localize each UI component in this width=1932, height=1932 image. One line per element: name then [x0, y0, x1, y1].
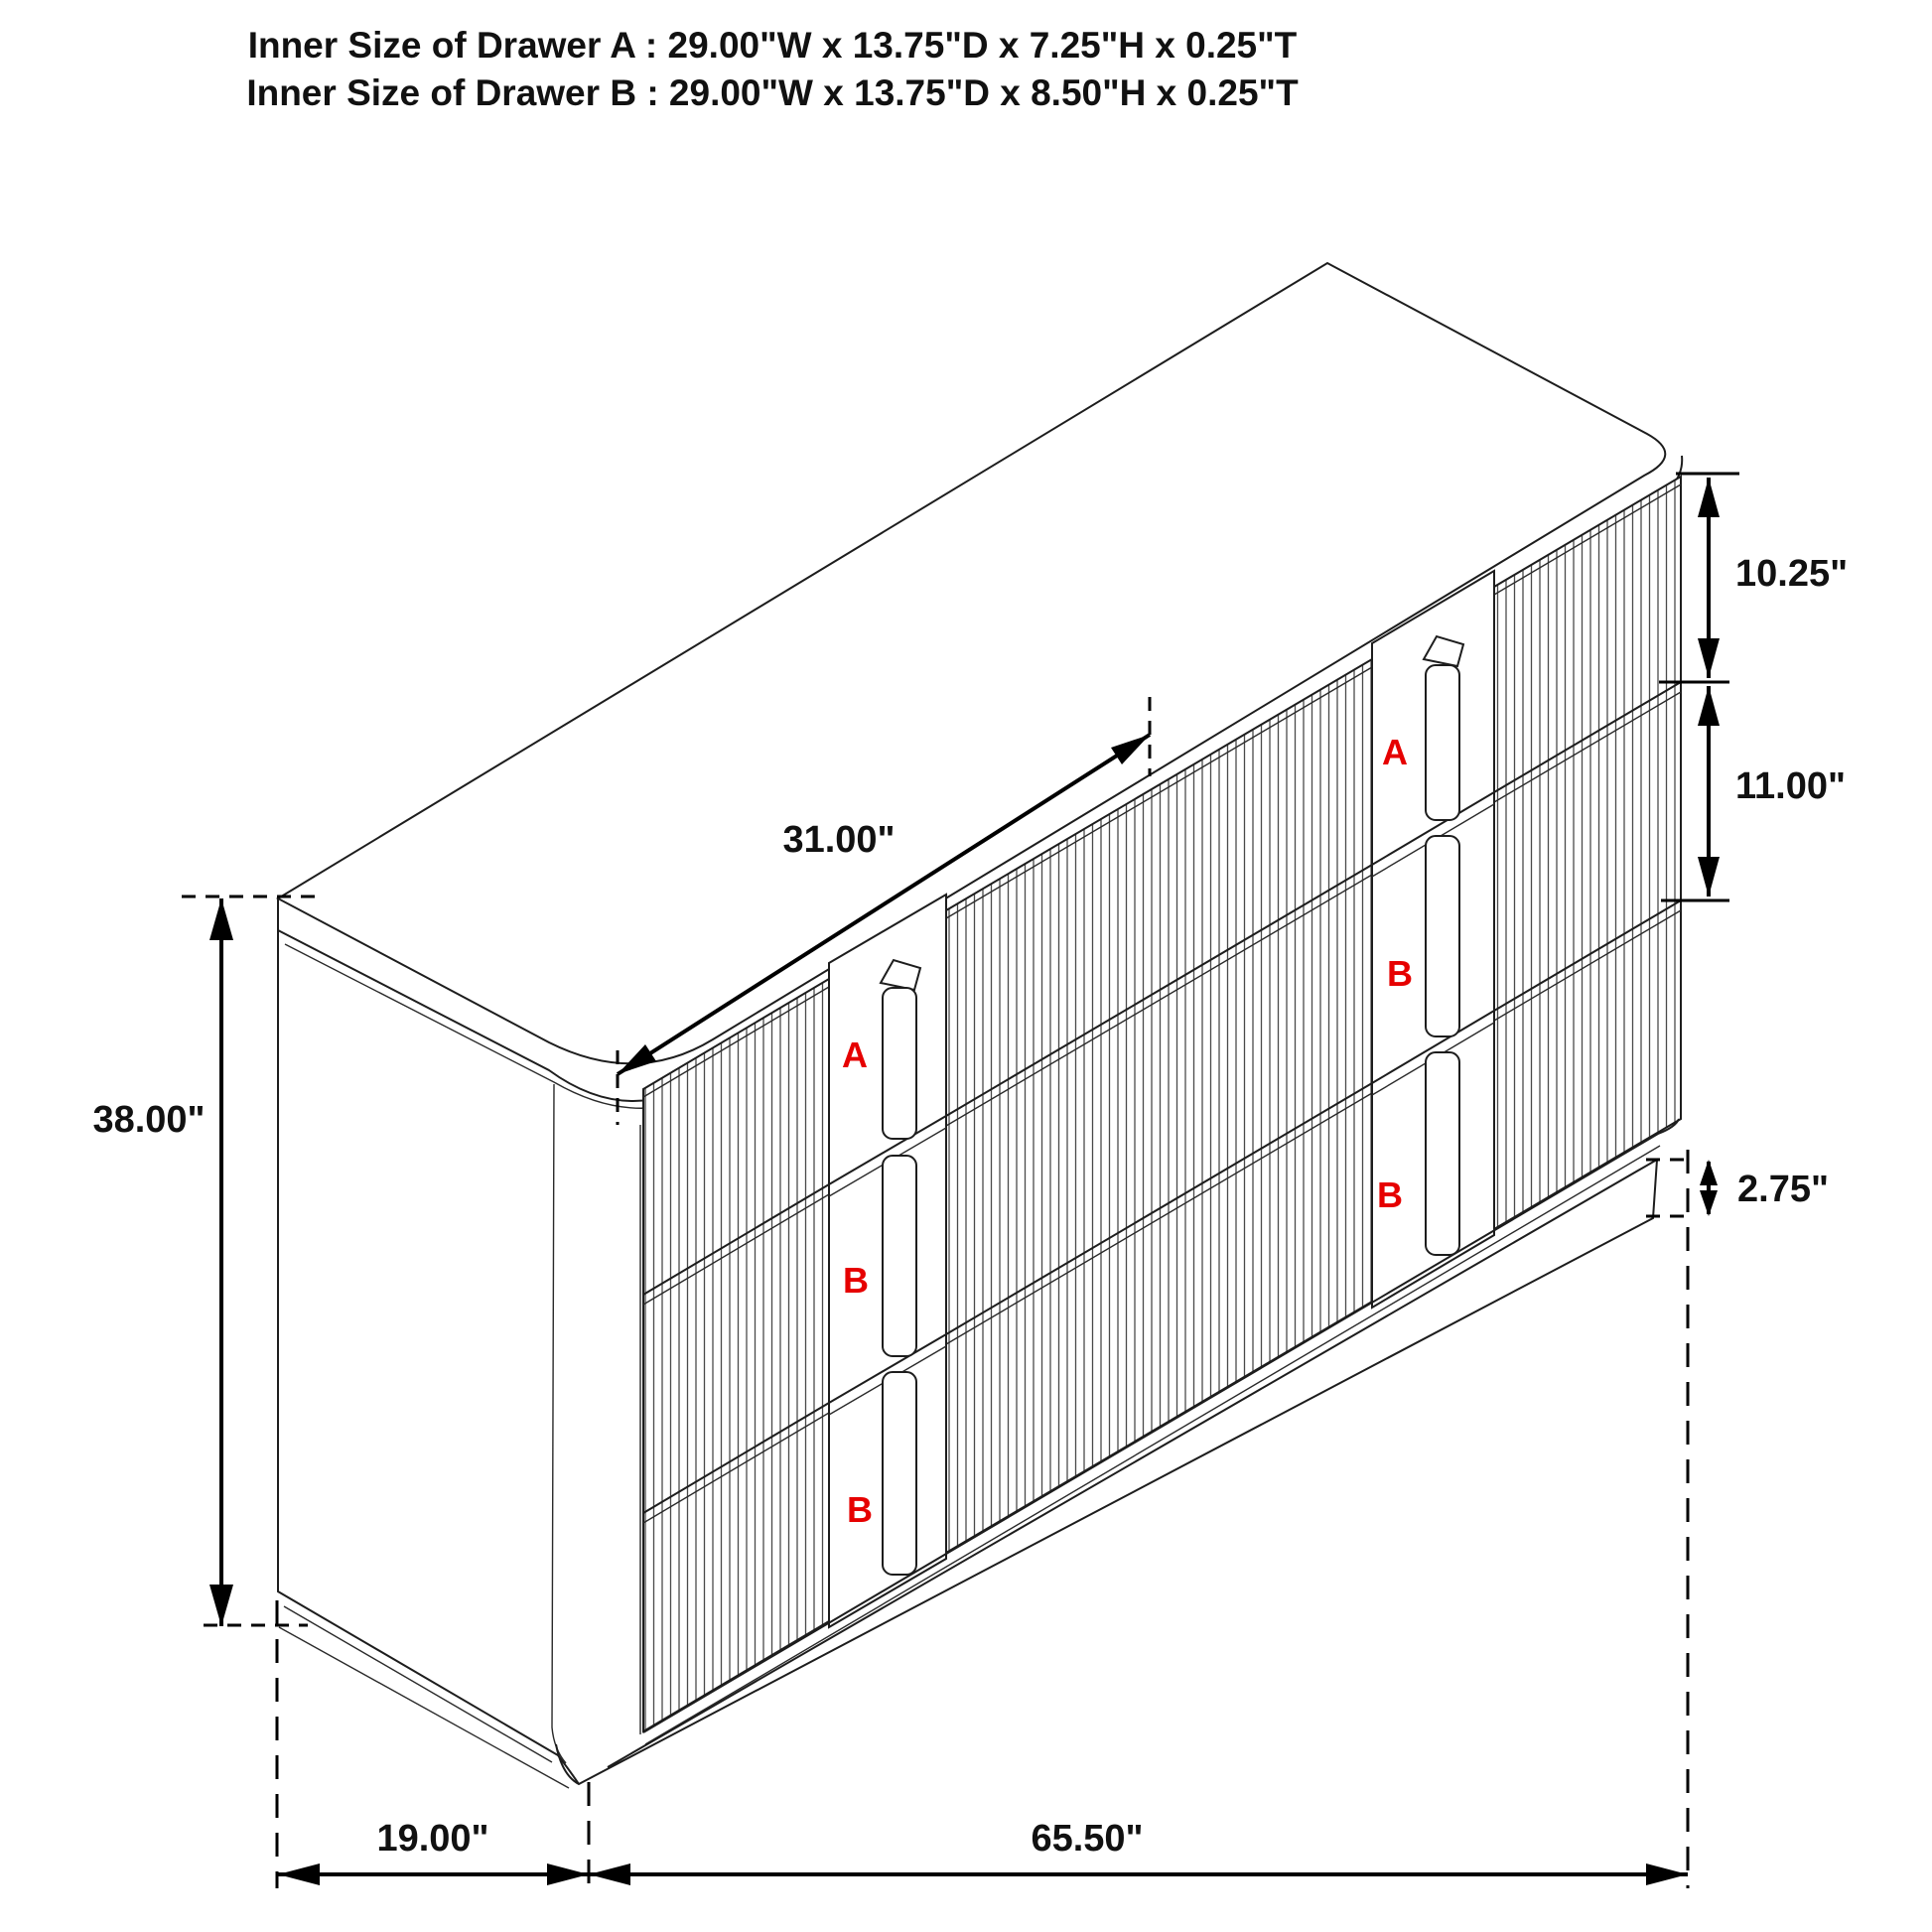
fluted-bank-right [1494, 477, 1681, 1229]
label-left-drawer-b2: B [847, 1489, 873, 1530]
top-drawer-arrow-down [1698, 638, 1720, 678]
dresser-drawing: A B B A B B [278, 263, 1682, 1788]
handle-left-segment-a [883, 988, 916, 1139]
base-value: 2.75" [1737, 1169, 1829, 1210]
handle-right-segment-b2 [1426, 1052, 1459, 1255]
handle-right-segment-b1 [1426, 836, 1459, 1036]
width-arrow-left [589, 1863, 630, 1885]
side-panel [278, 930, 640, 1788]
lower-drawer-arrow-up [1698, 686, 1720, 726]
depth-arrow-left [278, 1863, 320, 1885]
top-drawer-value: 10.25" [1735, 553, 1848, 595]
base-arrow-up [1700, 1160, 1718, 1185]
opening-value: 31.00" [782, 819, 895, 861]
dimension-overall-height: 38.00" [92, 897, 321, 1626]
label-right-drawer-b2: B [1377, 1174, 1403, 1215]
opening-arrow-left [618, 1044, 656, 1074]
handle-left-segment-b1 [883, 1156, 916, 1356]
lower-drawer-value: 11.00" [1735, 765, 1846, 807]
fluted-banks [643, 477, 1681, 1731]
height-arrow-down [209, 1585, 233, 1626]
handle-right-segment-a [1426, 665, 1459, 820]
width-arrow-right [1646, 1863, 1688, 1885]
corner-post-left-edge [552, 1084, 566, 1763]
label-left-drawer-a: A [842, 1035, 868, 1075]
fluted-bank-left [643, 979, 829, 1731]
width-value: 65.50" [1031, 1818, 1143, 1860]
dresser-dimension-diagram: Inner Size of Drawer A : 29.00"W x 13.75… [0, 0, 1932, 1932]
handle-left-segment-b2 [883, 1372, 916, 1575]
title-line-drawer-b: Inner Size of Drawer B : 29.00"W x 13.75… [246, 72, 1299, 113]
label-left-drawer-b1: B [843, 1260, 869, 1301]
label-right-drawer-b1: B [1387, 953, 1413, 994]
diagram-canvas: Inner Size of Drawer A : 29.00"W x 13.75… [0, 0, 1932, 1932]
depth-arrow-right [547, 1863, 589, 1885]
base-arrow-down [1700, 1190, 1718, 1216]
depth-value: 19.00" [376, 1818, 488, 1860]
side-plinth-line [284, 1606, 552, 1762]
side-panel-outline [278, 930, 579, 1784]
opening-arrow-right [1111, 735, 1150, 764]
lower-drawer-arrow-down [1698, 857, 1720, 897]
title-line-drawer-a: Inner Size of Drawer A : 29.00"W x 13.75… [248, 25, 1298, 66]
label-right-drawer-a: A [1382, 732, 1408, 772]
top-drawer-arrow-up [1698, 478, 1720, 517]
height-arrow-up [209, 898, 233, 940]
side-floor-line [279, 1627, 569, 1788]
height-value: 38.00" [92, 1099, 205, 1141]
title-block: Inner Size of Drawer A : 29.00"W x 13.75… [246, 25, 1299, 113]
